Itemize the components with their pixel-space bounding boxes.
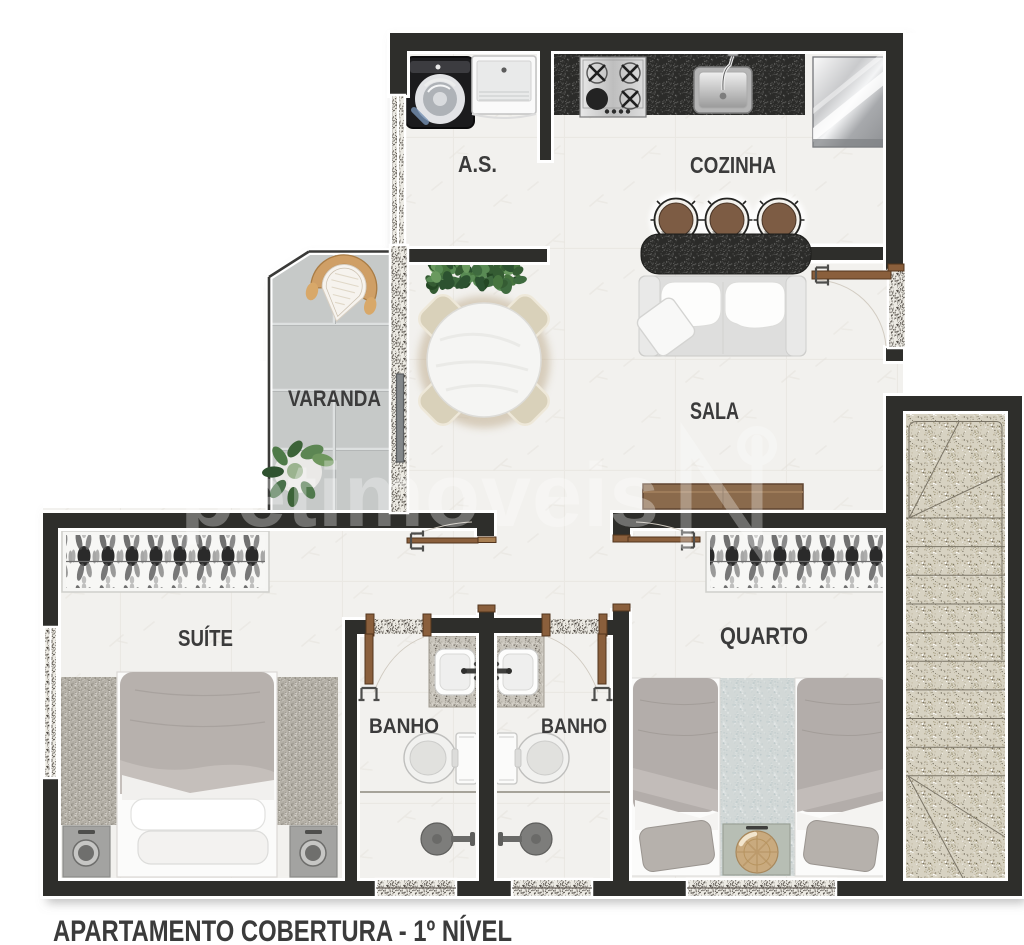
svg-text:QUARTO: QUARTO (720, 623, 808, 650)
svg-text:BANHO: BANHO (369, 715, 439, 738)
svg-text:APARTAMENTO COBERTURA - 1º NÍV: APARTAMENTO COBERTURA - 1º NÍVEL (53, 914, 512, 945)
svg-text:A.S.: A.S. (458, 151, 497, 177)
svg-text:VARANDA: VARANDA (288, 386, 381, 411)
svg-text:COZINHA: COZINHA (690, 152, 776, 178)
svg-text:petimoveis: petimoveis (180, 446, 660, 546)
svg-text:SALA: SALA (690, 398, 739, 425)
svg-text:SUÍTE: SUÍTE (178, 624, 233, 651)
svg-text:BANHO: BANHO (541, 715, 607, 738)
